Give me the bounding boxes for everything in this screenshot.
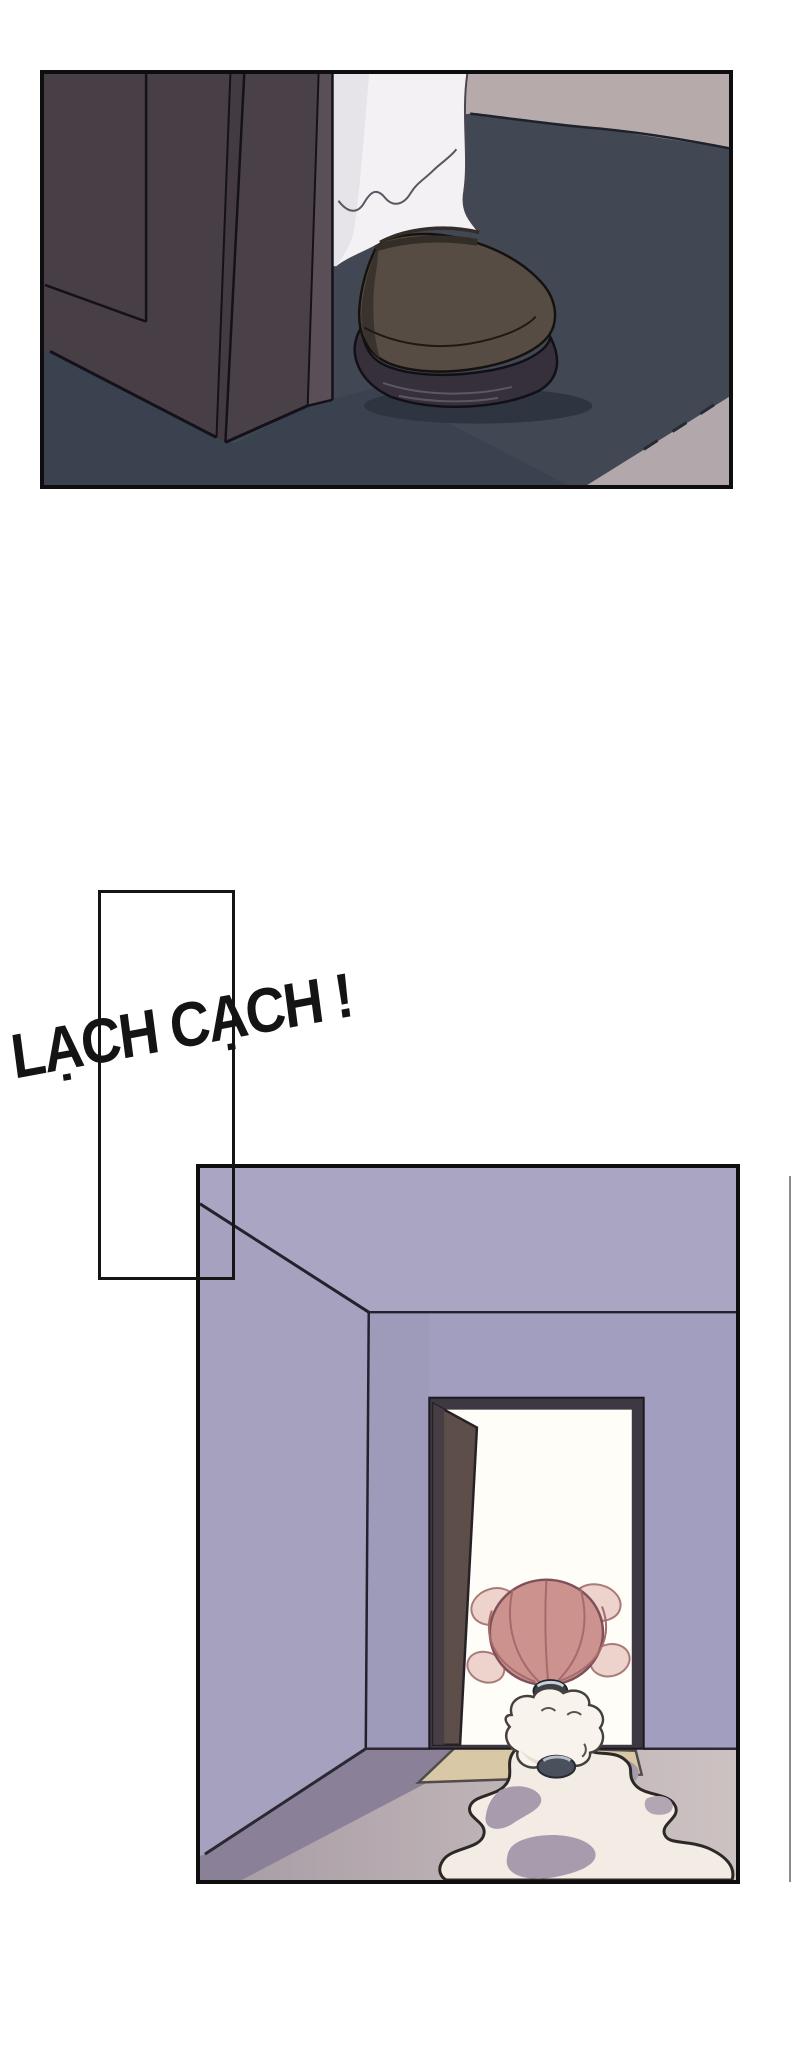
- wall-shade-near-door: [366, 1312, 430, 1749]
- open-door-edge: [433, 1404, 444, 1745]
- sfx-frame-rectangle: [98, 890, 235, 1280]
- panel-room-doorway: [196, 1164, 740, 1884]
- panel2-artwork: [200, 1168, 736, 1880]
- panel-doorstep-closeup: [40, 70, 733, 489]
- side-wall: [200, 1205, 369, 1858]
- panel1-artwork: [44, 74, 729, 485]
- adjacent-panel-edge: [789, 1176, 791, 1882]
